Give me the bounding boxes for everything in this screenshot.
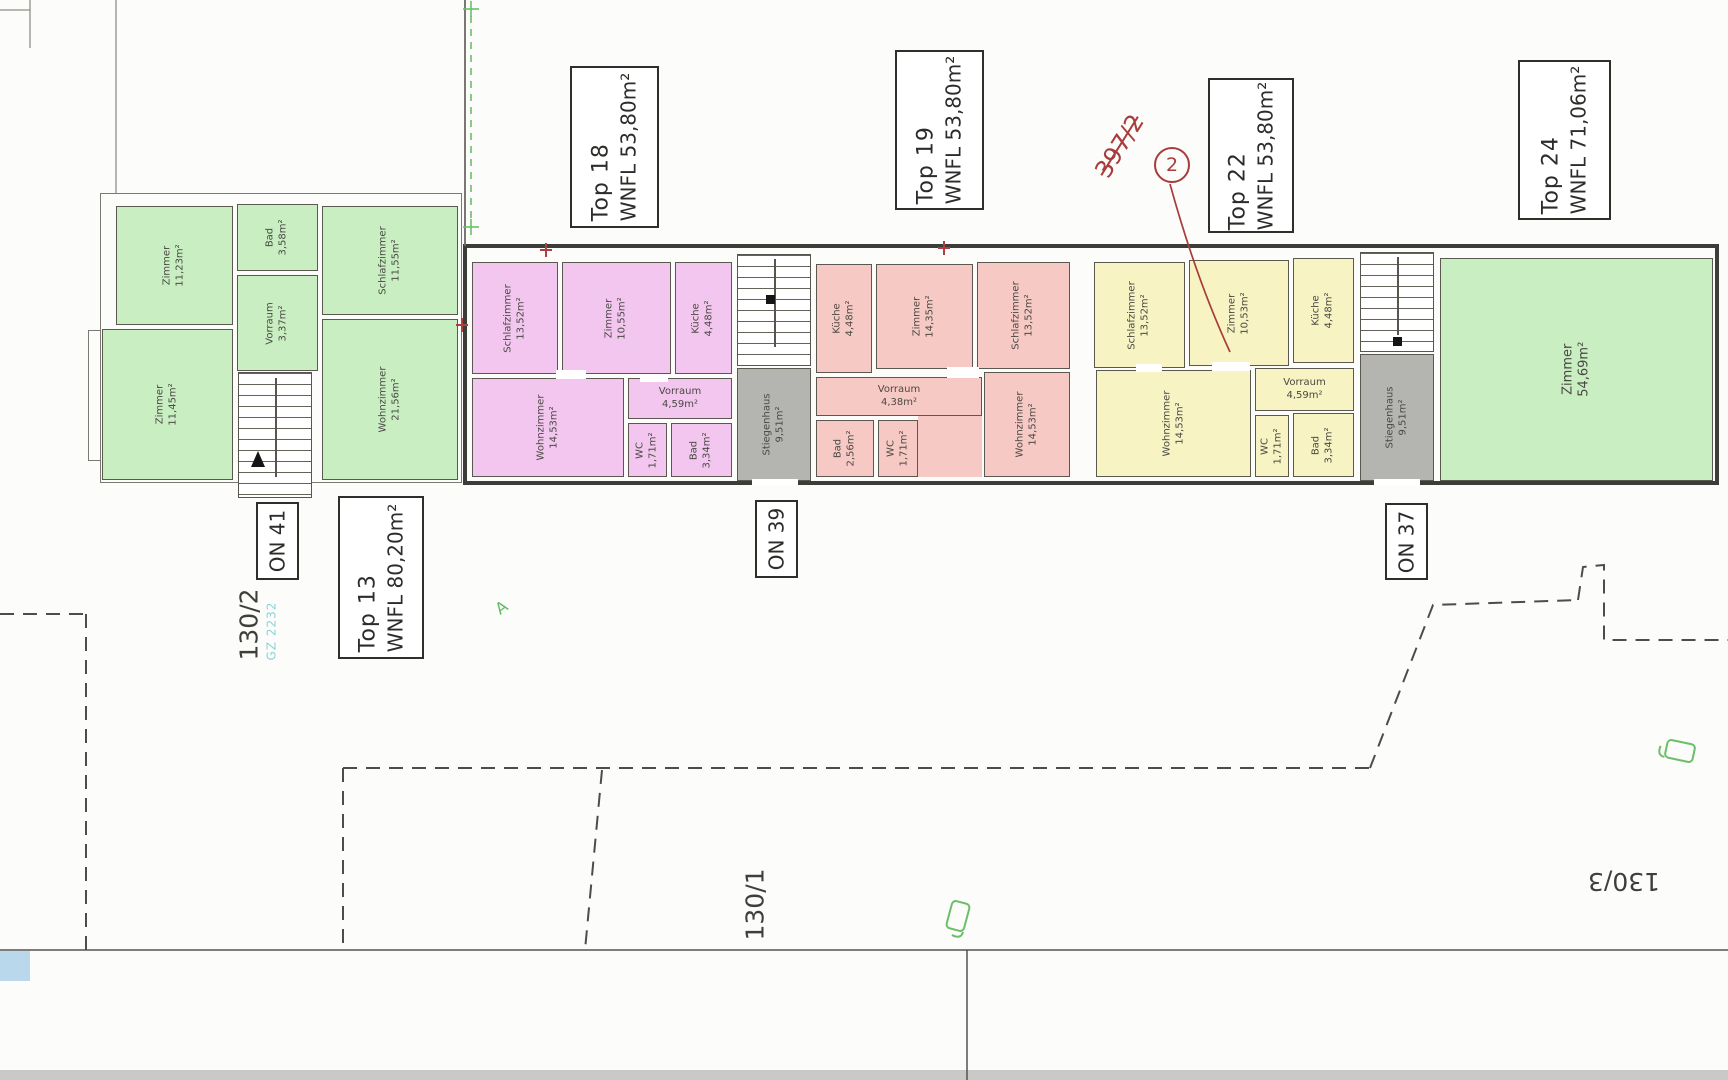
door-opening — [1136, 364, 1162, 372]
room-lb_zimmer2: Zimmer11,45m² — [102, 329, 233, 480]
room-y_vorraum: Vorraum4,59m² — [1255, 368, 1354, 411]
unit-number: Top 22 — [1225, 81, 1250, 230]
parcel-number-text: 397/2 — [1090, 109, 1150, 182]
room-name: Stiegenhaus — [1385, 386, 1398, 448]
room-area: 11,23m² — [174, 244, 187, 286]
room-area: 2,56m² — [845, 430, 858, 466]
unit-wnfl-area: WNFL 53,80m² — [942, 56, 966, 205]
room-sg2: Stiegenhaus9,51m² — [1360, 354, 1434, 481]
room-name: Zimmer — [1560, 342, 1576, 397]
room-name: Bad — [832, 430, 845, 466]
parcel-number-p130_1: 130/1 — [732, 856, 778, 952]
room-name: Vorraum — [659, 386, 701, 399]
room-lb_zimmer1: Zimmer11,23m² — [116, 206, 233, 325]
unit-wnfl-area: WNFL 53,80m² — [617, 73, 641, 222]
room-p_zimmer: Zimmer10,55m² — [562, 262, 671, 374]
parcel-number-text: 130/2 — [235, 588, 264, 660]
room-area: 3,37m² — [278, 302, 291, 344]
unit-label-top18: Top 18WNFL 53,80m² — [570, 66, 659, 228]
room-area: 13,52m² — [1139, 281, 1152, 349]
room-lb_bad: Bad3,58m² — [237, 204, 318, 271]
room-y_bad: Bad3,34m² — [1293, 413, 1354, 477]
room-name: Zimmer — [162, 244, 175, 286]
room-name: Stiegenhaus — [762, 393, 775, 455]
faint-structure-lines — [0, 0, 116, 193]
room-r_bad: Bad2,56m² — [816, 420, 874, 477]
entrance-label-on37: ON 37 — [1385, 503, 1428, 580]
room-name: Zimmer — [1226, 292, 1239, 334]
room-name: Wohnzimmer — [1161, 391, 1174, 457]
room-name: Wohnzimmer — [378, 367, 391, 433]
room-p_schlaf: Schlafzimmer13,52m² — [472, 262, 558, 374]
room-area: 54,69m² — [1577, 342, 1593, 397]
highlight-square — [0, 951, 30, 981]
entrance-label-on41: ON 41 — [256, 502, 299, 580]
unit-label-top19: Top 19WNFL 53,80m² — [895, 50, 984, 210]
room-p_wc: WC1,71m² — [628, 423, 667, 477]
room-area: 13,52m² — [515, 284, 528, 352]
stair-direction-arrow — [251, 451, 265, 467]
room-area: 14,53m² — [1027, 392, 1040, 458]
unit-label-top22: Top 22WNFL 53,80m² — [1208, 78, 1294, 233]
room-p_kueche: Küche4,48m² — [675, 262, 732, 374]
room-r_wc: WC1,71m² — [878, 420, 918, 477]
green-survey-symbol — [944, 900, 970, 938]
parcel-number-text: 130/3 — [1588, 867, 1660, 896]
room-y_wohn: Wohnzimmer14,53m² — [1096, 370, 1251, 477]
stairwell-on39 — [737, 254, 811, 366]
room-r_schlaf: Schlafzimmer13,52m² — [977, 262, 1070, 369]
room-name: WC — [1260, 428, 1273, 464]
entrance-number: ON 37 — [1395, 510, 1419, 573]
room-area: 10,53m² — [1239, 292, 1252, 334]
parcel-number-p397_2: 397/2 — [1096, 96, 1144, 196]
door-opening — [1212, 362, 1250, 371]
room-area: 11,45m² — [167, 383, 180, 425]
room-area: 4,59m² — [1283, 390, 1325, 403]
unit-number: Top 19 — [914, 56, 939, 205]
room-r_wohn: Wohnzimmer14,53m² — [984, 372, 1070, 477]
plot-solid-lines — [0, 950, 1728, 1080]
room-y_zimmer: Zimmer10,53m² — [1189, 260, 1289, 366]
room-area: 10,55m² — [616, 297, 629, 339]
room-area: 9,51m² — [1397, 386, 1410, 448]
room-name: Vorraum — [1283, 377, 1325, 390]
floor-plan-canvas: 2 GZ 2232 A — [0, 0, 1728, 1080]
room-area: 4,59m² — [659, 399, 701, 412]
unit-wnfl-area: WNFL 53,80m² — [1253, 81, 1277, 230]
room-area: 13,52m² — [1023, 281, 1036, 349]
bottom-scan-strip — [0, 1070, 1728, 1080]
room-name: Schlafzimmer — [377, 226, 390, 294]
room-name: Küche — [691, 300, 704, 336]
door-opening — [556, 370, 586, 379]
unit-label-top24: Top 24WNFL 71,06m² — [1518, 60, 1611, 220]
room-name: Schlafzimmer — [1011, 281, 1024, 349]
room-area: 1,71m² — [898, 430, 911, 466]
unit-number: Top 18 — [589, 73, 614, 222]
left-building-annex-outline — [88, 330, 101, 461]
room-r_kueche: Küche4,48m² — [816, 264, 872, 373]
parcel-number-p130_2: 130/2 — [226, 576, 272, 672]
room-name: Vorraum — [878, 384, 920, 397]
stair-marker-dot — [1393, 337, 1402, 346]
room-area: 1,71m² — [1272, 428, 1285, 464]
room-r_zimmer: Zimmer14,35m² — [876, 264, 973, 369]
room-lb_wohn: Wohnzimmer21,56m² — [322, 319, 458, 480]
room-area: 4,48m² — [703, 300, 716, 336]
revision-number: 2 — [1166, 154, 1178, 176]
room-name: Zimmer — [604, 297, 617, 339]
door-opening — [947, 367, 979, 378]
parcel-number-text: 130/1 — [741, 868, 770, 940]
room-g_zimmer: Zimmer54,69m² — [1440, 258, 1713, 481]
room-name: Schlafzimmer — [502, 284, 515, 352]
room-area: 3,34m² — [1323, 427, 1336, 463]
room-sg1: Stiegenhaus9,51m² — [737, 368, 811, 481]
room-name: WC — [635, 432, 648, 468]
room-name: Bad — [265, 219, 278, 255]
room-name: Wohnzimmer — [1015, 392, 1028, 458]
room-name: Bad — [1311, 427, 1324, 463]
room-area: 9,51m² — [774, 393, 787, 455]
room-p_bad: Bad3,34m² — [671, 423, 732, 477]
room-area: 1,71m² — [647, 432, 660, 468]
door-opening — [1374, 479, 1420, 486]
stair-marker-dot — [766, 295, 775, 304]
green-survey-dashed-line — [463, 1, 479, 235]
room-area: 14,53m² — [548, 395, 561, 461]
room-p_vorraum: Vorraum4,59m² — [628, 378, 732, 419]
room-y_kueche: Küche4,48m² — [1293, 258, 1354, 363]
room-name: Schlafzimmer — [1127, 281, 1140, 349]
door-opening — [752, 479, 798, 486]
survey-letter-marker: A — [492, 597, 512, 619]
room-r_vorraum: Vorraum4,38m² — [816, 377, 982, 416]
door-opening — [640, 374, 668, 382]
room-name: Bad — [689, 432, 702, 468]
green-survey-symbol — [1658, 738, 1695, 763]
room-area: 21,56m² — [390, 367, 403, 433]
room-name: Vorraum — [265, 302, 278, 344]
room-area: 3,34m² — [701, 432, 714, 468]
room-name: Zimmer — [912, 295, 925, 337]
unit-number: Top 13 — [355, 503, 380, 652]
room-area: 4,38m² — [878, 397, 920, 410]
room-area: 4,48m² — [844, 300, 857, 336]
room-name: Wohnzimmer — [536, 395, 549, 461]
room-y_schlaf: Schlafzimmer13,52m² — [1094, 262, 1185, 368]
room-lb_vorraum: Vorraum3,37m² — [237, 275, 318, 371]
unit-wnfl-area: WNFL 80,20m² — [383, 503, 407, 652]
stairwell-left-building — [238, 372, 312, 498]
stairwell-on37 — [1360, 252, 1434, 352]
room-area: 14,53m² — [1174, 391, 1187, 457]
unit-number: Top 24 — [1539, 66, 1564, 215]
room-name: Küche — [1311, 292, 1324, 328]
entrance-label-on39: ON 39 — [755, 500, 798, 578]
room-name: Küche — [831, 300, 844, 336]
unit-label-top13: Top 13WNFL 80,20m² — [338, 496, 424, 659]
room-name: Zimmer — [155, 383, 168, 425]
room-lb_schlaf: Schlafzimmer11,55m² — [322, 206, 458, 315]
unit-wnfl-area: WNFL 71,06m² — [1567, 66, 1591, 215]
room-p_wohn: Wohnzimmer14,53m² — [472, 378, 624, 477]
entrance-number: ON 39 — [765, 508, 789, 571]
room-area: 4,48m² — [1323, 292, 1336, 328]
room-area: 14,35m² — [924, 295, 937, 337]
room-area: 3,58m² — [277, 219, 290, 255]
revision-circle-badge: 2 — [1154, 147, 1190, 183]
room-y_wc: WC1,71m² — [1255, 415, 1289, 477]
parcel-number-p130_3: 130/3 — [1578, 860, 1670, 902]
room-fill — [918, 416, 982, 477]
entrance-number: ON 41 — [266, 510, 290, 573]
room-area: 11,55m² — [390, 226, 403, 294]
room-name: WC — [885, 430, 898, 466]
